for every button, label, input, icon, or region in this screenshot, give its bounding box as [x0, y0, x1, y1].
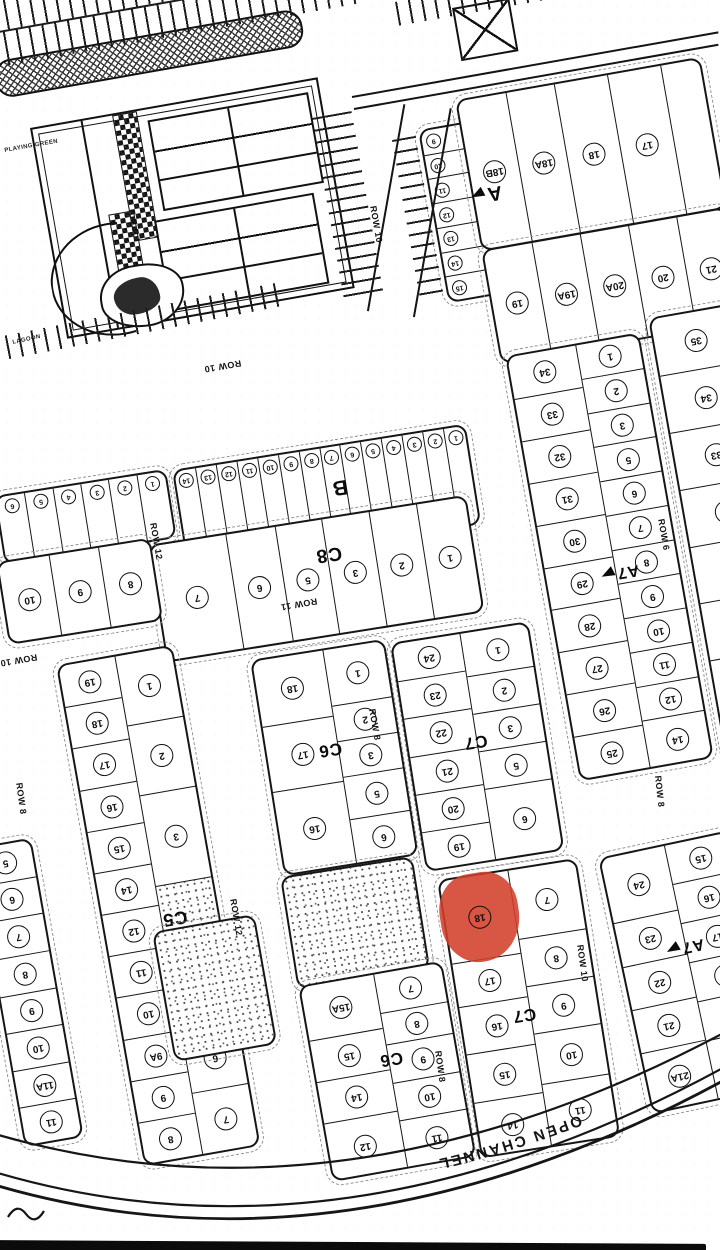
plot-number: 12: [220, 465, 237, 482]
plot-number: 2: [427, 432, 444, 449]
plot-number: 4: [385, 439, 402, 456]
plot-number: 24: [625, 871, 652, 898]
plot-number: 18: [466, 904, 492, 930]
plot-number: 19: [504, 289, 531, 316]
plot-number: 8: [303, 452, 320, 469]
plot-number: 8: [117, 570, 143, 596]
plot-number: 17: [704, 923, 720, 950]
plot-number: 9: [639, 583, 666, 610]
plot-number: 6: [344, 445, 361, 462]
section-label-C7: C7: [462, 731, 489, 754]
plot-number: 3: [163, 823, 190, 850]
section-c7-upper: 24232221201912356C7: [390, 621, 565, 872]
plot-number: 7: [534, 886, 560, 912]
plot-cell: 35: [650, 305, 720, 375]
highlighted-plot: 18: [439, 871, 520, 964]
plot-number: 9: [67, 578, 93, 604]
plot-number: 19A: [553, 281, 580, 308]
plot-number: 3: [88, 484, 105, 501]
plot-number: 26: [591, 697, 618, 724]
plot-number: 14: [664, 726, 691, 753]
plot-number: 22: [646, 969, 673, 996]
plot-number: 34: [531, 359, 558, 386]
plot-number: 16: [695, 883, 720, 910]
plot-cell: 6: [350, 809, 417, 862]
plot-number: 2: [149, 743, 176, 770]
plot-number: 5: [364, 780, 390, 806]
plot-cell: 7: [508, 860, 586, 938]
plot-number: 12: [657, 686, 684, 713]
plot-number: 16: [99, 793, 126, 820]
plot-cell: 2: [128, 716, 196, 796]
plot-number: 7: [323, 449, 340, 466]
plot-number: 10: [261, 459, 278, 476]
plot-number: 32: [546, 443, 573, 470]
plot-number: 16: [302, 815, 328, 841]
plot-number: 21: [434, 758, 460, 784]
plot-number: 15: [106, 835, 133, 862]
plot-number: 33: [539, 401, 566, 428]
plot-number: 5: [365, 442, 382, 459]
plot-number: 5: [0, 849, 18, 876]
plot-number: 25: [598, 739, 625, 766]
plot-number: 3: [609, 412, 636, 439]
plot-number: 3: [497, 714, 523, 740]
plot-number: 8: [543, 944, 569, 970]
plot-number: 28: [576, 613, 603, 640]
plot-number: 17: [476, 967, 502, 993]
plot-number: 20: [650, 263, 677, 290]
plot-number: 1: [437, 544, 463, 570]
plot-number: 20A: [601, 272, 628, 299]
parking-ticks: [395, 0, 640, 26]
plot-number: 3: [358, 742, 384, 768]
plot-number: 1: [136, 673, 163, 700]
plot-number: 18: [279, 675, 305, 701]
plot-number: 18: [84, 710, 111, 737]
plot-number: 17: [290, 741, 316, 767]
plot-number: 7: [627, 515, 654, 542]
plot-number: 10: [645, 617, 672, 644]
plot-number: 1: [144, 475, 161, 492]
plot-number: 19: [445, 833, 471, 859]
plot-number: 32: [712, 498, 720, 525]
plot-number: 14: [446, 254, 463, 271]
plot-number: 22: [428, 720, 454, 746]
plot-number: 19: [77, 669, 104, 696]
leader-arrow-icon: [464, 187, 485, 204]
plot-number: 14: [113, 876, 140, 903]
plot-number: 13: [199, 468, 216, 485]
plot-number: 5: [32, 493, 49, 510]
plot-number: 7: [184, 584, 210, 610]
plot-number: 6: [371, 823, 397, 849]
road-label: ROW 10: [0, 652, 38, 668]
plot-number: 1: [447, 429, 464, 446]
plot-number: 20: [440, 795, 466, 821]
plot-number: 24: [416, 645, 442, 671]
plot-number: 11: [241, 462, 258, 479]
plot-number: 5: [502, 752, 528, 778]
plot-number: 34: [692, 384, 719, 411]
plot-number: 18A: [530, 149, 557, 176]
plot-number: 1: [484, 636, 510, 662]
plot-number: 23: [422, 682, 448, 708]
road-label: ROW 8: [14, 782, 28, 815]
plot-cell: 16: [273, 781, 356, 874]
plot-cell: 1: [324, 641, 393, 706]
plot-cell: 14: [642, 710, 712, 767]
plot-number: 17: [634, 131, 661, 158]
plot-number: 35: [682, 327, 709, 354]
plot-number: 7: [5, 924, 32, 951]
plot-number: 33: [702, 441, 720, 468]
road-label: ROW 8: [653, 775, 666, 808]
plot-number: 5: [615, 446, 642, 473]
plot-number: 13: [442, 230, 459, 247]
plot-number: 9: [425, 133, 442, 150]
plot-number: 3: [342, 559, 368, 585]
plot-number: 30: [561, 528, 588, 555]
plot-number: 2: [389, 552, 415, 578]
plot-number: 29: [569, 570, 596, 597]
section-label-C8: C8: [314, 540, 343, 566]
plot-number: 14: [178, 472, 195, 489]
section-label-C6: C6: [317, 738, 344, 761]
section-c6-upper: 18171612356C6: [250, 639, 419, 877]
open-channel-road: OPEN CHANNEL: [0, 995, 720, 1250]
plot-number: 21: [698, 255, 720, 282]
plot-number: 17: [91, 752, 118, 779]
plot-number: 2: [491, 677, 517, 703]
plot-number: 15: [451, 279, 468, 296]
plot-cell: 1: [115, 647, 183, 726]
plot-number: 9: [282, 455, 299, 472]
plot-number: 18: [712, 962, 720, 989]
plot-number: 11: [128, 959, 155, 986]
plot-number: 5: [295, 567, 321, 593]
plot-number: 1: [597, 343, 624, 370]
plot-number: 6: [247, 574, 273, 600]
road-label: ROW 10: [203, 358, 242, 374]
leader-arrow-icon: [660, 942, 681, 960]
plot-number: 2: [116, 479, 133, 496]
plot-number: 8: [11, 961, 38, 988]
plot-number: 6: [621, 480, 648, 507]
plot-number: 2: [603, 378, 630, 405]
plot-number: 12: [121, 918, 148, 945]
leader-arrow-icon: [595, 567, 616, 584]
plot-number: 27: [584, 655, 611, 682]
plot-number: 6: [511, 806, 537, 832]
plot-number: 10: [16, 586, 42, 612]
plot-cell: 6: [485, 778, 563, 859]
plot-number: 4: [60, 488, 77, 505]
plot-number: 11: [651, 651, 678, 678]
plot-number: 15: [687, 844, 714, 871]
squiggle-mark: [8, 1209, 44, 1220]
plot-map-scan: PLAYING GREEN LAGOON 910111213141518B18A…: [0, 0, 720, 1250]
plot-number: 31: [554, 486, 581, 513]
plot-number: 12: [438, 206, 455, 223]
plot-number: 18: [581, 140, 608, 167]
plot-number: 3: [406, 436, 423, 453]
plot-cell: 18: [252, 651, 333, 727]
plot-number: 1: [345, 660, 371, 686]
plot-number: 6: [3, 497, 20, 514]
plot-number: 6: [0, 887, 25, 914]
